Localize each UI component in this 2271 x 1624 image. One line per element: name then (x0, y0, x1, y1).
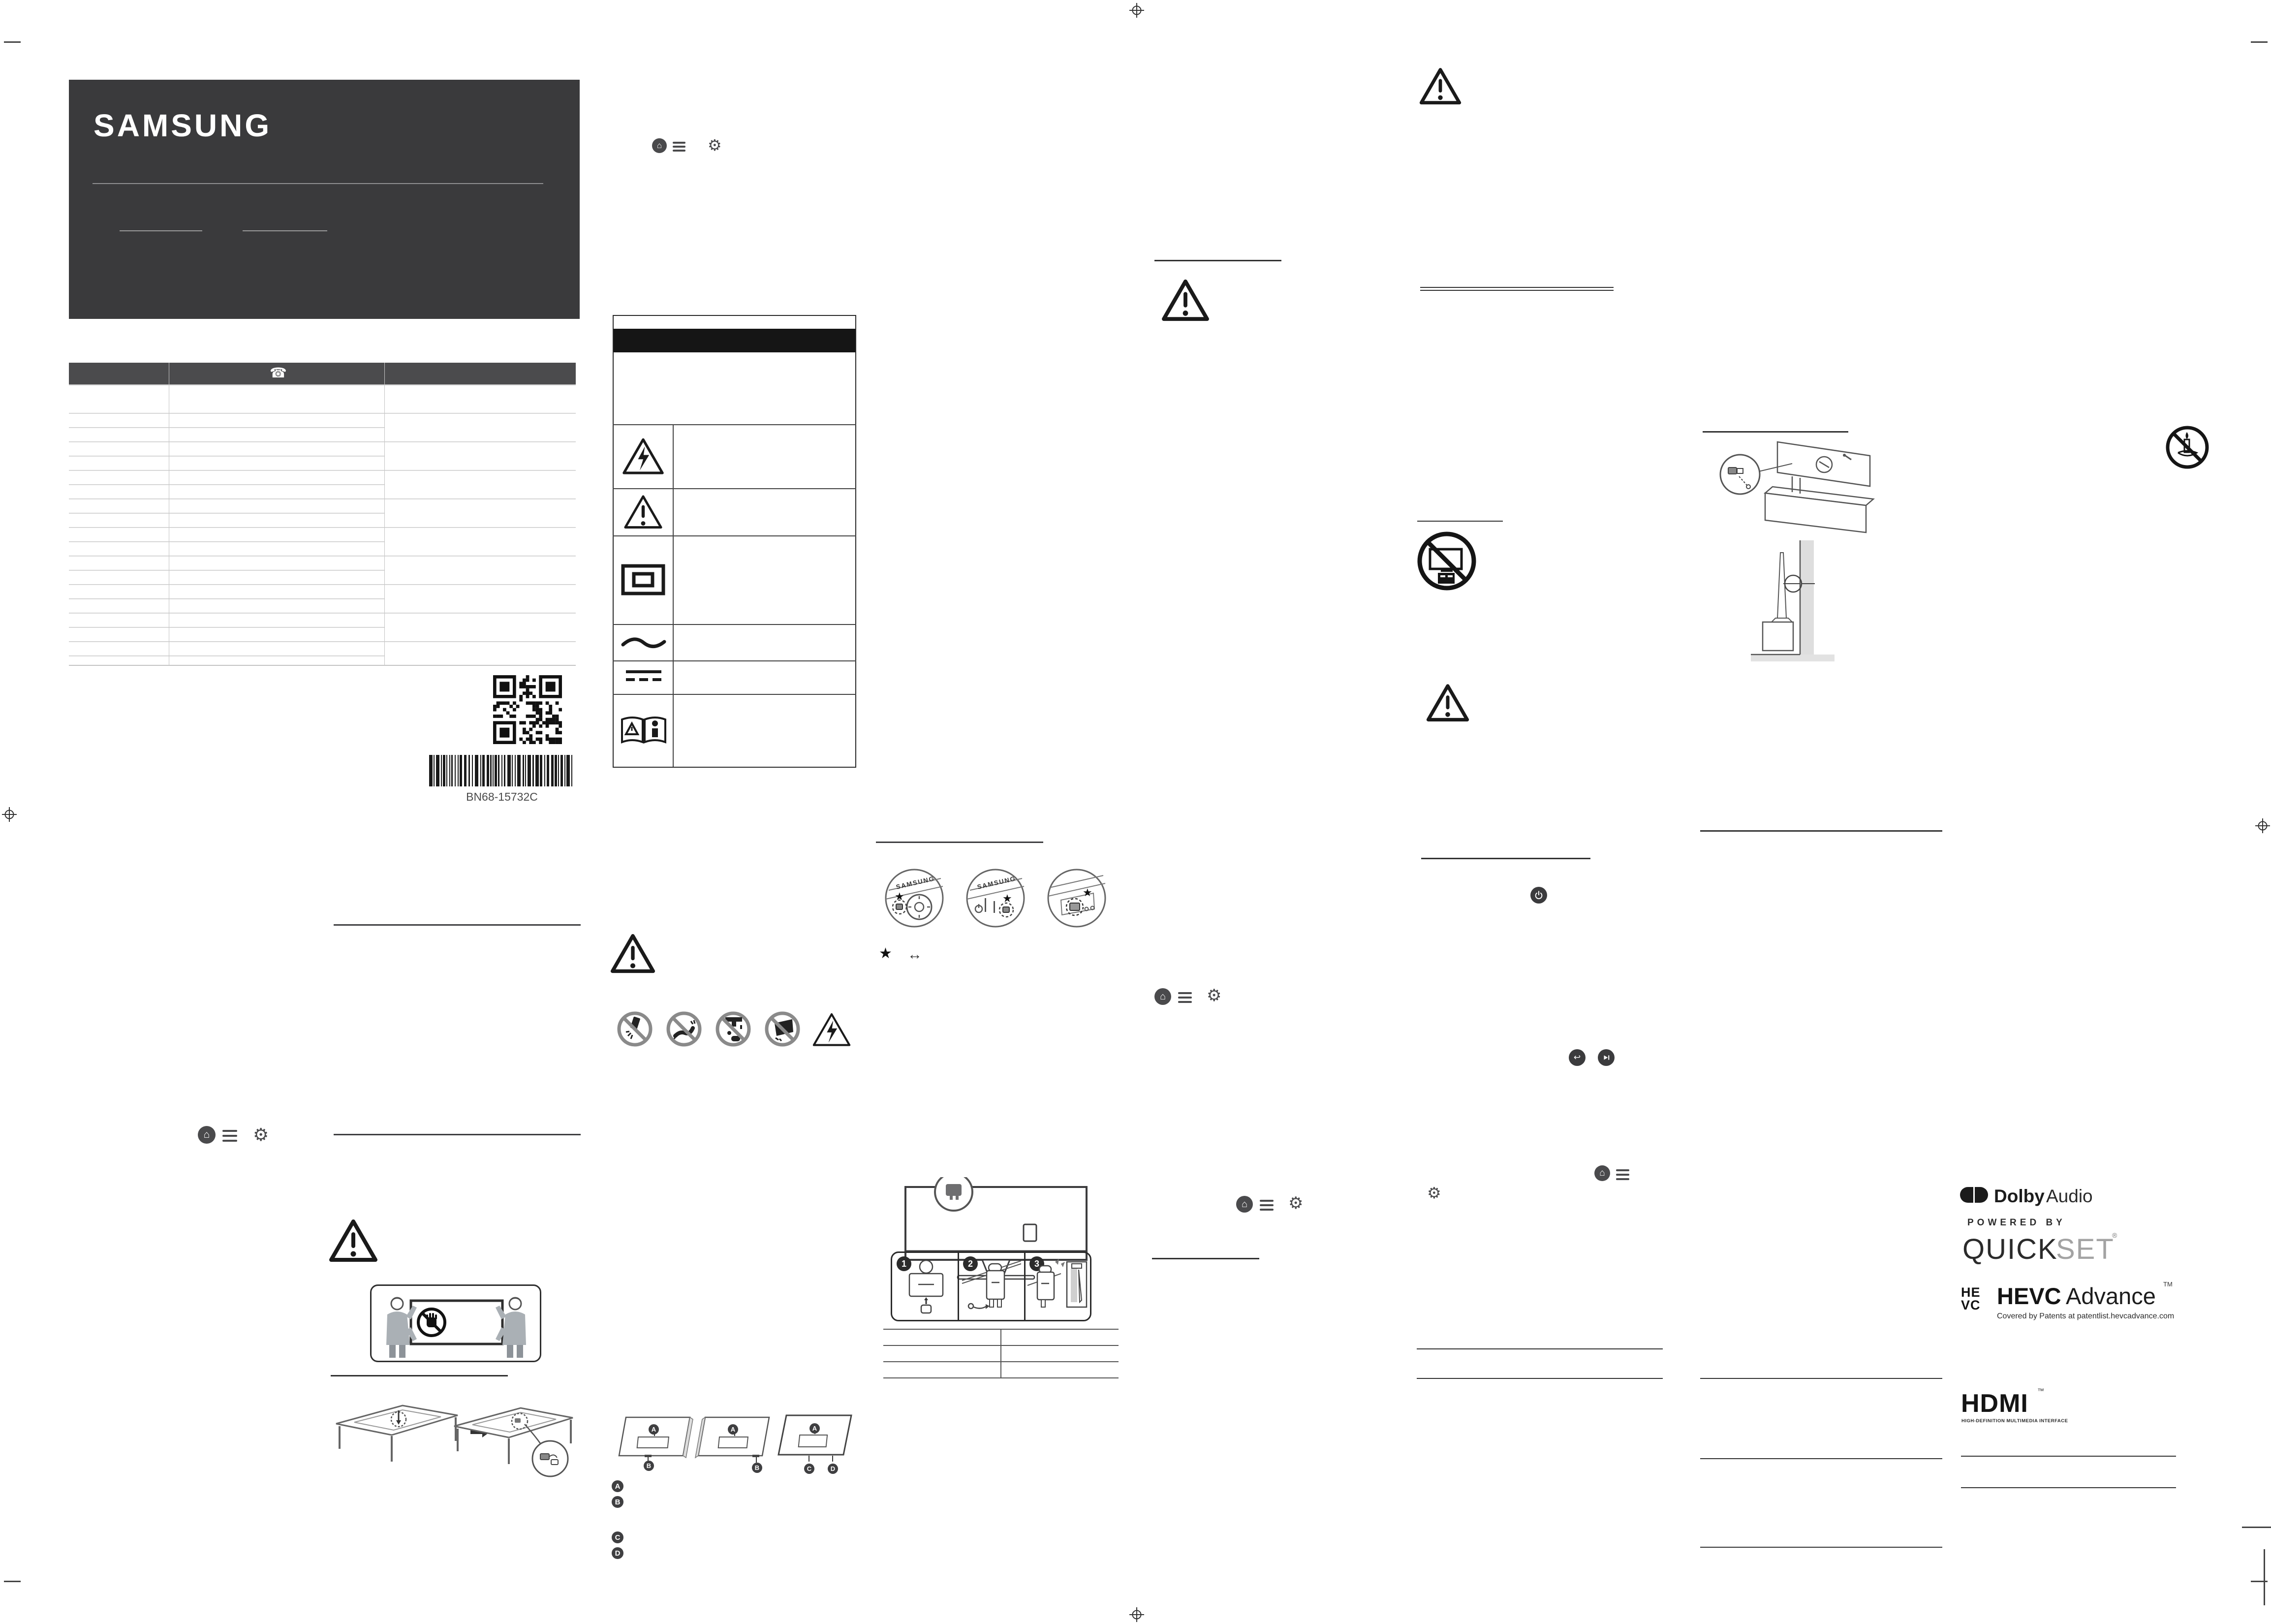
cover-blank-field (243, 230, 327, 231)
dc-voltage-icon (623, 668, 664, 684)
hevc-tm-mark: TM (2163, 1280, 2173, 1288)
table-line (69, 384, 576, 385)
table-vline (1000, 1329, 1001, 1378)
safety-table-band (614, 329, 855, 352)
qr-code (493, 675, 562, 744)
tv-back-variant-3 (774, 1412, 854, 1468)
home-icon: ⌂ (1154, 988, 1171, 1005)
callout-a-badge: A (728, 1424, 738, 1435)
cover-rule (93, 183, 543, 184)
contact-table-rows-merged (384, 413, 576, 666)
callout-b-badge: B (752, 1463, 762, 1473)
warning-triangle-icon (329, 1218, 378, 1264)
dolby-logo-right-glyph (1975, 1187, 1988, 1203)
warning-triangle-icon (610, 933, 655, 975)
dolby-logo-word2: Audio (2046, 1186, 2093, 1207)
hevc-logo-bold: HEVC (1997, 1282, 2061, 1310)
quickset-registered-mark: ® (2112, 1231, 2117, 1239)
hdmi-tagline: HIGH-DEFINITION MULTIMEDIA INTERFACE (1961, 1418, 2068, 1424)
legend-d-badge: D (612, 1547, 623, 1559)
section-divider (331, 1375, 508, 1376)
crop-tick (2251, 41, 2268, 43)
anti-tip-furniture-diagram (1718, 439, 1878, 545)
contact-table-rows (69, 413, 384, 666)
section-divider (1961, 1456, 2176, 1457)
table-line (613, 424, 856, 425)
safety-symbols-table (613, 315, 856, 768)
double-rule (1420, 287, 1614, 288)
contact-table-header: ☎ (69, 363, 576, 384)
manual-sheet: SAMSUNG ☎ BN68-15732C ⌂ ⚙ (0, 0, 2271, 1624)
star-legend-icon: ★ (879, 946, 892, 961)
crop-tick (4, 1581, 21, 1582)
hdmi-tm-mark: ™ (2037, 1387, 2044, 1395)
home-icon: ⌂ (652, 138, 667, 153)
home-icon: ⌂ (198, 1126, 216, 1144)
menu-icon (222, 1130, 237, 1132)
callout-b-badge: B (644, 1461, 654, 1471)
quickset-logo-set: SET (2056, 1233, 2115, 1266)
table-line (613, 624, 856, 625)
dolby-logo-left-glyph (1960, 1187, 1973, 1203)
cover-panel: SAMSUNG (69, 80, 580, 319)
section-divider (334, 1134, 581, 1135)
table-line (69, 665, 576, 666)
legend-b-badge: B (612, 1496, 623, 1508)
hevc-monogram-top: HE (1961, 1286, 1992, 1299)
hevc-logo-light: Advance (2066, 1282, 2156, 1310)
crop-tick (2242, 1527, 2271, 1528)
section-divider (1700, 830, 1942, 832)
tv-back-variant-1 (615, 1413, 694, 1467)
registration-mark-top (1129, 3, 1144, 18)
quickset-logo-quick: QUICK (1962, 1233, 2058, 1266)
return-button-icon: ↩ (1569, 1049, 1586, 1066)
section-divider (1700, 1458, 1942, 1459)
class-ii-icon (621, 564, 665, 595)
section-divider (1700, 1378, 1942, 1379)
section-divider (1417, 1378, 1663, 1379)
step-2-diagram (960, 1255, 1023, 1319)
home-icon: ⌂ (1594, 1165, 1610, 1181)
section-divider (1154, 260, 1281, 261)
callout-a-badge: A (809, 1423, 820, 1434)
gear-icon: ⚙ (1207, 987, 1221, 1004)
part-number-label: BN68-15732C (429, 790, 575, 804)
anti-tip-wall-diagram (1751, 540, 1835, 666)
crop-tick (2264, 1549, 2265, 1605)
warning-triangle-icon (1419, 67, 1462, 106)
ac-voltage-icon (620, 634, 667, 651)
barcode (429, 755, 575, 786)
no-object-insertion-icon (616, 1010, 653, 1048)
menu-icon (673, 142, 685, 144)
hdmi-logo: HDMI (1961, 1389, 2028, 1418)
gear-icon: ⚙ (253, 1126, 269, 1144)
menu-icon (1178, 992, 1192, 994)
play-pause-button-icon (1598, 1049, 1615, 1066)
warning-triangle-icon (1161, 279, 1210, 323)
registration-mark-right (2255, 818, 2270, 833)
hevc-monogram: HE VC (1961, 1286, 1992, 1317)
legend-a-badge: A (612, 1480, 623, 1492)
section-divider (1421, 858, 1590, 859)
section-divider (334, 924, 581, 926)
legend-c-badge: C (612, 1531, 623, 1543)
registration-mark-left (2, 807, 17, 822)
no-damaged-cord-icon (665, 1010, 703, 1048)
table-line (613, 488, 856, 489)
section-divider (1703, 431, 1848, 433)
table-line (613, 694, 856, 695)
cover-blank-field (120, 230, 202, 231)
table-line (613, 660, 856, 661)
carry-illustration (372, 1286, 540, 1361)
callout-c-badge: C (804, 1464, 814, 1474)
dolby-logo-word1: Dolby (1994, 1186, 2045, 1207)
table-vline (673, 424, 674, 767)
quickset-powered-by: POWERED BY (1967, 1218, 2066, 1228)
steps-divider (1024, 1251, 1026, 1321)
crop-tick (4, 41, 21, 43)
controller-location-sticker-3: ★ (1046, 868, 1107, 929)
svg-text:★: ★ (1083, 886, 1092, 899)
carry-illustration-frame (370, 1284, 541, 1362)
double-rule (1420, 290, 1614, 291)
phone-icon: ☎ (270, 366, 287, 380)
no-liquid-overload-icon (715, 1010, 752, 1048)
menu-icon (1616, 1169, 1629, 1171)
hevc-monogram-bottom: VC (1961, 1299, 1992, 1312)
home-icon: ⌂ (1236, 1196, 1253, 1213)
section-divider (876, 842, 1043, 843)
section-divider (1417, 1348, 1663, 1349)
range-arrow-icon: ↔ (907, 947, 922, 962)
gear-icon: ⚙ (1288, 1195, 1303, 1212)
step-1-diagram (894, 1255, 957, 1319)
high-voltage-triangle-icon (811, 1012, 852, 1048)
samsung-logo: SAMSUNG (93, 107, 272, 144)
section-divider (1417, 521, 1503, 522)
registration-mark-bottom (1129, 1607, 1144, 1622)
no-tv-on-cabinet-icon (1415, 530, 1478, 593)
no-candle-icon (2164, 424, 2210, 470)
controller-location-sticker-2: SAMSUNG ★ (965, 868, 1026, 929)
table-line (613, 535, 856, 536)
callout-a-badge: A (649, 1424, 659, 1435)
gear-icon: ⚙ (708, 137, 722, 153)
crop-tick (2251, 1581, 2268, 1582)
gear-icon: ⚙ (1427, 1185, 1441, 1201)
steps-divider (958, 1251, 959, 1321)
caution-triangle-icon (623, 494, 663, 531)
hevc-tagline: Covered by Patents at patentlist.hevcadv… (1997, 1312, 2174, 1321)
tv-back-variant-2 (694, 1413, 773, 1467)
section-divider (1961, 1487, 2176, 1488)
menu-icon (1260, 1200, 1274, 1202)
controller-location-sticker-1: SAMSUNG ★ (884, 868, 945, 929)
step-3-diagram (1027, 1255, 1089, 1319)
table-placement-illustration (329, 1397, 575, 1483)
high-voltage-triangle-icon (621, 437, 665, 476)
power-button-icon (1530, 887, 1547, 904)
section-divider (1700, 1547, 1942, 1548)
section-divider (1152, 1258, 1259, 1259)
refer-to-manual-icon (619, 715, 668, 746)
no-unstable-placement-icon (764, 1010, 801, 1048)
warning-triangle-icon (1426, 683, 1469, 723)
callout-d-badge: D (828, 1464, 838, 1474)
